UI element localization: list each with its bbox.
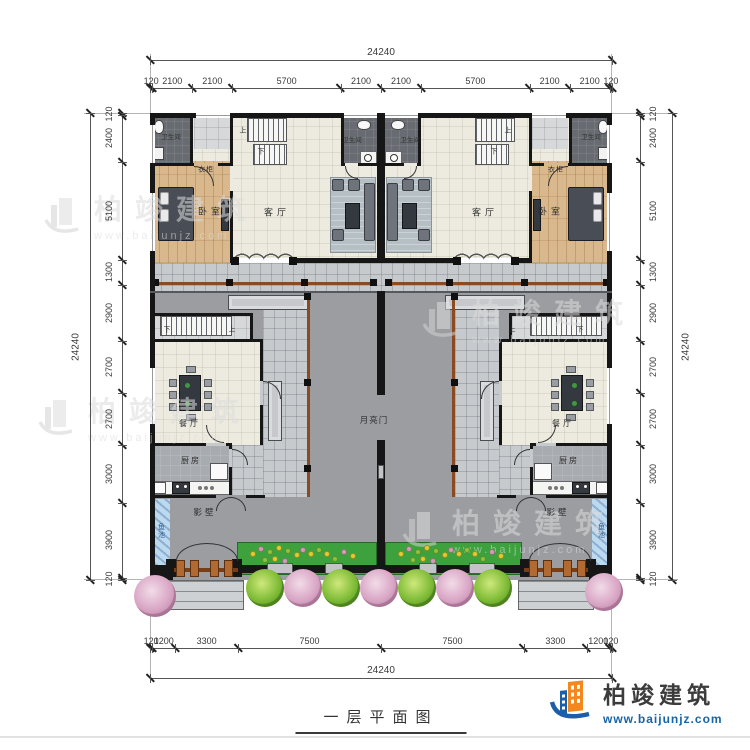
- dim-cross: [118, 260, 127, 261]
- page-divider: [0, 736, 750, 738]
- label-stair_up: 上: [240, 128, 247, 135]
- dish: [572, 383, 577, 388]
- dim-label: 120: [603, 76, 618, 86]
- appliance-left: [210, 463, 228, 480]
- column: [304, 465, 311, 472]
- dim-cross: [636, 115, 645, 116]
- flower: [398, 551, 404, 557]
- stairs-wing-left: [160, 316, 232, 336]
- flower: [480, 556, 486, 562]
- dim-label: 24240: [71, 333, 82, 361]
- dim-label: 5100: [648, 201, 658, 221]
- dim-label: 120: [648, 107, 658, 122]
- door-opening: [529, 165, 532, 191]
- chair: [586, 403, 594, 411]
- sink-dot: [210, 486, 214, 490]
- flower: [430, 558, 436, 564]
- dim-label: 2700: [104, 409, 114, 429]
- dim-label: 7500: [300, 636, 320, 646]
- sofa-left: [364, 183, 375, 241]
- dim-line: [640, 113, 641, 580]
- gate-post: [176, 560, 185, 577]
- dim-cross: [175, 644, 176, 653]
- wall: [150, 495, 265, 498]
- dim-cross: [381, 644, 382, 653]
- flower: [341, 549, 347, 555]
- label-bathroom: 卫生间: [342, 138, 362, 145]
- column: [451, 379, 458, 386]
- dim-cross: [636, 445, 645, 446]
- dim-cross: [118, 445, 127, 446]
- bush: [398, 569, 436, 607]
- wall: [150, 339, 263, 342]
- chair: [186, 366, 196, 373]
- dim-label: 24240: [681, 333, 692, 361]
- floorplan-page: 柏竣建筑www.baijunjz.com 柏竣建筑www.baijunjz.co…: [0, 0, 750, 750]
- wall-stairhall-left: [150, 313, 253, 316]
- dim-line: [672, 113, 673, 580]
- column: [304, 379, 311, 386]
- door-opening: [536, 443, 556, 446]
- label-bathroom: 卫生间: [161, 135, 181, 142]
- column: [301, 279, 308, 286]
- dim-label: 3300: [197, 636, 217, 646]
- armchair: [348, 179, 360, 191]
- flower: [410, 557, 416, 563]
- column: [289, 257, 297, 265]
- dim-label: 120: [603, 636, 618, 646]
- window: [607, 125, 612, 163]
- dim-label: 3900: [648, 530, 658, 550]
- window: [150, 368, 155, 424]
- chair: [586, 391, 594, 399]
- drawing-title: 一层平面图: [295, 706, 466, 734]
- wall: [497, 495, 612, 498]
- brand-url: www.baijunjz.com: [603, 712, 723, 726]
- sink-dot: [560, 486, 564, 490]
- wall: [569, 113, 572, 165]
- toilet: [357, 120, 371, 130]
- label-living: 客厅: [264, 209, 290, 218]
- gate-post: [224, 560, 233, 577]
- sink-dot: [554, 486, 558, 490]
- flower: [442, 552, 448, 558]
- dim-label: 7500: [442, 636, 462, 646]
- dim-label: 2700: [648, 409, 658, 429]
- burner: [183, 484, 188, 489]
- dim-label: 3000: [648, 464, 658, 484]
- window: [196, 113, 230, 118]
- coffee-table-right: [402, 203, 417, 229]
- flower: [448, 547, 454, 553]
- flower: [350, 553, 356, 559]
- dim-label: 2100: [202, 76, 222, 86]
- dim-cross: [86, 113, 95, 114]
- sofa-right: [387, 183, 398, 241]
- folding-door-right: [455, 251, 513, 263]
- coffee-table-left: [345, 203, 360, 229]
- bush: [322, 569, 360, 607]
- wall-stairhall-right: [509, 313, 612, 316]
- wall: [190, 113, 193, 165]
- dim-label: 5100: [104, 201, 114, 221]
- flower: [294, 552, 300, 558]
- gate-post: [210, 560, 219, 577]
- label-screen_wall: 影壁: [546, 508, 569, 517]
- dim-cross: [86, 580, 95, 581]
- entry-steps-right: [518, 580, 594, 610]
- dim-label: 1300: [104, 262, 114, 282]
- dim-cross: [570, 84, 571, 93]
- label-screen_wall: 影壁: [193, 508, 216, 517]
- label-living: 客厅: [472, 209, 498, 218]
- dim-cross: [636, 341, 645, 342]
- corridor-beam: [150, 282, 377, 285]
- door-opening: [530, 449, 533, 467]
- label-stair_up: 上: [505, 128, 512, 135]
- dim-cross: [421, 84, 422, 93]
- brand-logo: 柏竣建筑 www.baijunjz.com: [549, 676, 723, 726]
- door-opening: [230, 165, 233, 191]
- sink-dot: [204, 486, 208, 490]
- wall-left: [150, 113, 155, 580]
- label-bathroom: 卫生间: [400, 138, 420, 145]
- entry-steps-left: [168, 580, 244, 610]
- armchair: [332, 179, 344, 191]
- moon-gate-wall-upper: [377, 291, 385, 395]
- dim-cross: [636, 503, 645, 504]
- dim-label: 1300: [648, 262, 658, 282]
- window: [607, 368, 612, 424]
- flower: [316, 547, 322, 553]
- toilet: [391, 120, 405, 130]
- dim-label: 2900: [648, 303, 658, 323]
- flower: [267, 549, 273, 555]
- bush: [134, 575, 176, 617]
- corridor-beam: [385, 282, 612, 285]
- flower: [456, 551, 462, 557]
- brand-name: 柏竣建筑: [603, 676, 723, 710]
- dim-cross: [341, 84, 342, 93]
- gate-post: [190, 560, 199, 577]
- dim-cross: [636, 285, 645, 286]
- label-bedroom: 卧室: [538, 208, 564, 217]
- gate-post: [543, 560, 552, 577]
- dim-cross: [612, 674, 613, 683]
- window: [385, 113, 419, 118]
- dim-label: 1200: [154, 636, 174, 646]
- chair: [551, 403, 559, 411]
- chair: [566, 366, 576, 373]
- wall: [499, 339, 612, 342]
- bush: [585, 573, 623, 611]
- label-dining: 餐厅: [552, 420, 574, 428]
- dim-cross: [232, 84, 233, 93]
- flower: [489, 549, 495, 555]
- stairs-wing-right: [530, 316, 602, 336]
- dim-label: 2700: [104, 357, 114, 377]
- gate-block: [378, 465, 384, 479]
- column: [446, 279, 453, 286]
- dim-label: 3900: [104, 530, 114, 550]
- sink-bowl: [364, 154, 372, 162]
- dim-cross: [150, 674, 151, 683]
- wardrobe-right: [532, 115, 568, 149]
- column: [511, 257, 519, 265]
- column: [370, 279, 377, 286]
- flower: [285, 548, 291, 554]
- moon-gate-wall-lower: [377, 440, 385, 580]
- dining-table-left: [179, 375, 201, 411]
- dim-label: 2400: [648, 128, 658, 148]
- watermark-logo-icon: [36, 394, 78, 440]
- column: [231, 257, 239, 265]
- dish: [572, 401, 577, 406]
- dim-cross: [612, 56, 613, 65]
- label-bathroom: 卫生间: [581, 135, 601, 142]
- door-opening: [499, 381, 502, 405]
- wardrobe-left: [194, 115, 230, 149]
- window: [150, 125, 155, 163]
- label-kitchen: 厨房: [181, 457, 201, 465]
- flower: [272, 556, 278, 562]
- dim-line: [90, 113, 91, 580]
- dim-cross: [118, 503, 127, 504]
- stairs-left-upper: [247, 118, 287, 142]
- dim-label: 3300: [545, 636, 565, 646]
- dim-cross: [381, 84, 382, 93]
- flower: [424, 545, 430, 551]
- column: [451, 293, 458, 300]
- bush: [436, 569, 474, 607]
- dim-label: 2900: [104, 303, 114, 323]
- window: [150, 193, 155, 251]
- bench: [228, 295, 308, 310]
- dim-cross: [524, 644, 525, 653]
- chair: [169, 379, 177, 387]
- dim-label: 24240: [367, 665, 395, 676]
- label-fish_pond: 鱼池: [158, 523, 165, 539]
- flower: [282, 558, 288, 564]
- dining-table-right: [561, 375, 583, 411]
- pillow: [593, 192, 602, 205]
- dim-cross: [118, 341, 127, 342]
- dim-cross: [118, 162, 127, 163]
- flower: [250, 551, 256, 557]
- chair: [169, 403, 177, 411]
- dim-cross: [118, 580, 127, 581]
- gate-post: [563, 560, 572, 577]
- label-stair_down: 下: [164, 327, 171, 334]
- dim-cross: [118, 115, 127, 116]
- dim-label: 24240: [367, 47, 395, 58]
- label-stair_down: 下: [258, 149, 265, 156]
- brand-logo-icon: [549, 676, 595, 726]
- pillow: [593, 209, 602, 222]
- flower: [415, 549, 421, 555]
- dim-cross: [118, 285, 127, 286]
- dim-label: 5700: [277, 76, 297, 86]
- gate-post: [577, 560, 586, 577]
- dim-cross: [238, 644, 239, 653]
- dim-cross: [636, 580, 645, 581]
- sink-dot: [198, 486, 202, 490]
- corridor-floor: [150, 263, 612, 293]
- sink-dot: [548, 486, 552, 490]
- dim-cross: [636, 393, 645, 394]
- bush: [284, 569, 322, 607]
- dim-label: 2100: [540, 76, 560, 86]
- gate-post: [529, 560, 538, 577]
- label-stair_down: 下: [491, 149, 498, 156]
- column: [385, 279, 392, 286]
- label-stair_up: 上: [509, 327, 516, 334]
- dim-cross: [150, 56, 151, 65]
- dim-line: [150, 60, 612, 61]
- dim-cross: [636, 162, 645, 163]
- dim-line: [150, 678, 612, 679]
- window: [532, 113, 566, 118]
- bush: [474, 569, 512, 607]
- flower: [472, 551, 478, 557]
- toilet: [154, 120, 164, 134]
- chair: [204, 379, 212, 387]
- flower: [464, 547, 470, 553]
- sink-bowl: [390, 154, 398, 162]
- dim-label: 2100: [580, 76, 600, 86]
- dim-cross: [530, 84, 531, 93]
- chair: [204, 403, 212, 411]
- dim-label: 2700: [648, 357, 658, 377]
- label-moon_gate: 月亮门: [360, 416, 389, 425]
- bush: [246, 569, 284, 607]
- flower: [262, 557, 268, 563]
- dish: [185, 383, 190, 388]
- chair: [204, 391, 212, 399]
- flower: [332, 556, 338, 562]
- dim-label: 3000: [104, 464, 114, 484]
- party-wall: [377, 113, 385, 263]
- column: [451, 465, 458, 472]
- dim-cross: [636, 260, 645, 261]
- door-opening: [206, 443, 226, 446]
- flower: [406, 546, 412, 552]
- pillow: [160, 192, 169, 205]
- dim-label: 120: [144, 76, 159, 86]
- flower: [498, 553, 504, 559]
- armchair: [418, 229, 430, 241]
- dim-line: [122, 113, 123, 580]
- armchair: [418, 179, 430, 191]
- bush: [360, 569, 398, 607]
- label-kitchen: 厨房: [559, 457, 579, 465]
- dim-label: 5700: [465, 76, 485, 86]
- wall: [250, 313, 253, 341]
- label-wardrobe: 衣柜: [198, 167, 214, 174]
- column: [521, 279, 528, 286]
- floorplan-drawing: [150, 113, 612, 580]
- window: [607, 193, 612, 251]
- sink-left: [154, 482, 166, 494]
- chair: [586, 379, 594, 387]
- burner: [175, 484, 180, 489]
- pillow: [160, 209, 169, 222]
- flower: [258, 546, 264, 552]
- flower: [324, 551, 330, 557]
- armchair: [332, 229, 344, 241]
- label-fish_pond: 鱼池: [598, 523, 605, 539]
- column: [304, 293, 311, 300]
- dim-cross: [192, 84, 193, 93]
- dim-label: 120: [104, 107, 114, 122]
- label-stair_down: 下: [577, 327, 584, 334]
- chair: [551, 391, 559, 399]
- window: [343, 113, 377, 118]
- column: [453, 257, 461, 265]
- appliance-right: [534, 463, 552, 480]
- dish: [185, 401, 190, 406]
- watermark-logo-icon: [42, 192, 84, 238]
- burner: [575, 484, 580, 489]
- wall-right: [607, 113, 612, 580]
- dim-cross: [668, 580, 677, 581]
- flower: [308, 551, 314, 557]
- flower: [420, 556, 426, 562]
- dim-label: 2400: [104, 128, 114, 148]
- dim-cross: [118, 393, 127, 394]
- dim-label: 2100: [391, 76, 411, 86]
- label-bedroom: 卧室: [198, 208, 224, 217]
- dim-cross: [668, 113, 677, 114]
- dim-label: 2100: [351, 76, 371, 86]
- burner: [583, 484, 588, 489]
- chair: [169, 391, 177, 399]
- flower: [433, 548, 439, 554]
- label-wardrobe: 衣柜: [548, 167, 564, 174]
- flower: [276, 545, 282, 551]
- flower: [300, 547, 306, 553]
- armchair: [402, 179, 414, 191]
- chair: [551, 379, 559, 387]
- dim-label: 120: [648, 571, 658, 586]
- folding-door-left: [235, 251, 293, 263]
- label-stair_up: 上: [229, 327, 236, 334]
- dim-label: 2100: [162, 76, 182, 86]
- label-dining: 餐厅: [179, 420, 201, 428]
- column: [226, 279, 233, 286]
- dim-label: 120: [104, 571, 114, 586]
